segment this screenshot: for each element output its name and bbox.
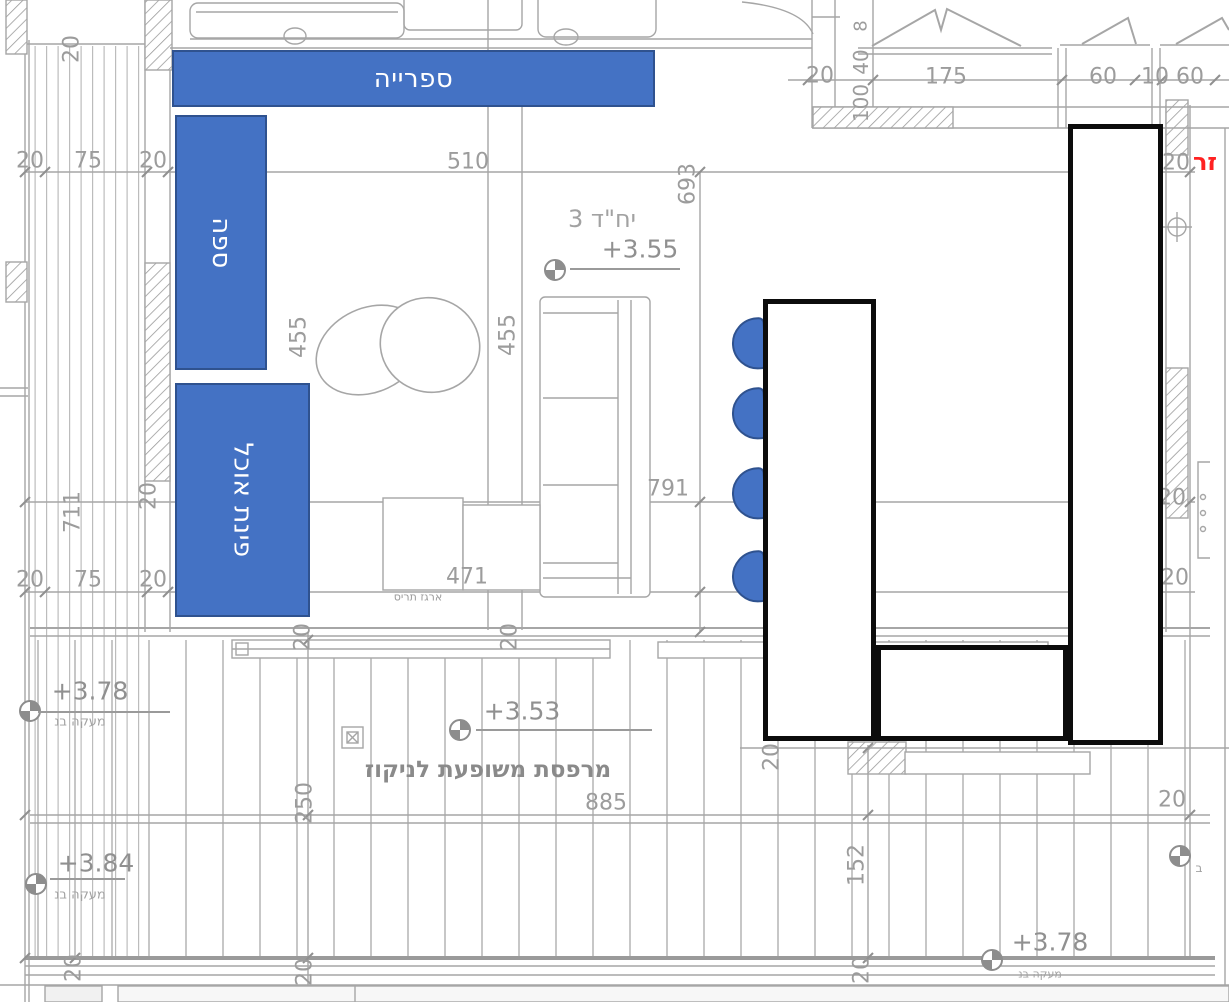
level-value: +3.78 <box>1012 928 1089 957</box>
level-value: +3.78 <box>52 677 129 706</box>
annotation-sofa[interactable]: ספה <box>175 115 267 370</box>
annotation-dining-label: פינת אוכל <box>228 442 258 557</box>
dim-label: 455 <box>496 314 521 356</box>
red-edge-note: זר <box>1193 148 1217 176</box>
dim-label: 471 <box>446 565 488 590</box>
dim-label: 75 <box>74 568 102 593</box>
dim-label: 885 <box>585 791 627 816</box>
level-value: +3.84 <box>58 849 135 878</box>
balcony-label: מרפסת משופעת לניקוז <box>365 757 611 783</box>
level-note: יח"ד 3 <box>568 205 636 233</box>
level-underline <box>50 878 125 880</box>
level-marker-icon <box>25 873 47 895</box>
dim-label: 711 <box>61 491 86 533</box>
dim-label: 20 <box>1158 788 1186 813</box>
shutter-box-label: ארגז תריס <box>394 591 442 604</box>
dim-label: 8 <box>851 20 872 31</box>
level-underline <box>38 711 170 713</box>
level-marker-icon <box>544 259 566 281</box>
shape-dining-table-bottom[interactable] <box>876 645 1068 741</box>
dim-label: 20 <box>62 954 87 982</box>
dim-label: 20 <box>293 958 318 986</box>
floor-plan-canvas: ספרייה ספה פינת אוכל 5106934554557914712… <box>0 0 1229 1002</box>
shape-dining-table-left[interactable] <box>763 299 876 741</box>
level-note: מעקה בנ <box>54 888 106 903</box>
level-note: מעקה בנ <box>1018 968 1062 981</box>
dim-label: 60 <box>1176 65 1204 90</box>
dim-label: 20 <box>139 568 167 593</box>
shape-tall-cabinet-right[interactable] <box>1068 124 1163 745</box>
dim-label: 791 <box>647 477 689 502</box>
dim-label: 100 <box>849 84 873 122</box>
dim-label: 510 <box>447 150 489 175</box>
dim-label: 20 <box>760 743 785 771</box>
dim-label: 250 <box>293 782 318 824</box>
dim-label: 20 <box>850 956 875 984</box>
dim-label: 20 <box>498 623 523 651</box>
level-marker-icon <box>1169 845 1191 867</box>
annotation-library-label: ספרייה <box>374 64 453 94</box>
annotation-sofa-label: ספה <box>206 217 236 269</box>
dim-label: 10 <box>1141 65 1169 90</box>
dim-label: 20 <box>1161 566 1189 591</box>
level-marker-icon <box>981 949 1003 971</box>
level-underline <box>476 729 652 731</box>
level-marker-icon <box>449 719 471 741</box>
dim-label: 455 <box>287 316 312 358</box>
dim-label: 20 <box>16 568 44 593</box>
annotation-dining[interactable]: פינת אוכל <box>175 383 310 617</box>
dim-label: 20 <box>291 623 316 651</box>
dim-label: 40 <box>849 49 873 74</box>
dim-label: 152 <box>845 844 870 886</box>
dim-label: 20 <box>137 482 162 510</box>
level-underline <box>570 268 680 270</box>
dim-label: 20 <box>60 35 85 63</box>
level-note: ב <box>1196 861 1203 875</box>
level-value: +3.55 <box>602 235 679 264</box>
annotation-library[interactable]: ספרייה <box>172 50 655 107</box>
dim-label: 20 <box>139 149 167 174</box>
dim-label: 20 <box>16 149 44 174</box>
level-value: +3.53 <box>484 697 561 726</box>
armchair-plan <box>301 285 492 412</box>
dim-label: 60 <box>1089 65 1117 90</box>
dim-label: 175 <box>925 65 967 90</box>
dim-label: 75 <box>74 149 102 174</box>
dim-label: 20 <box>806 64 834 89</box>
dim-label: 693 <box>676 163 701 205</box>
level-note: מעקה בנ <box>54 715 106 730</box>
level-underline <box>1005 958 1090 960</box>
dim-label: 20 <box>1162 151 1190 176</box>
